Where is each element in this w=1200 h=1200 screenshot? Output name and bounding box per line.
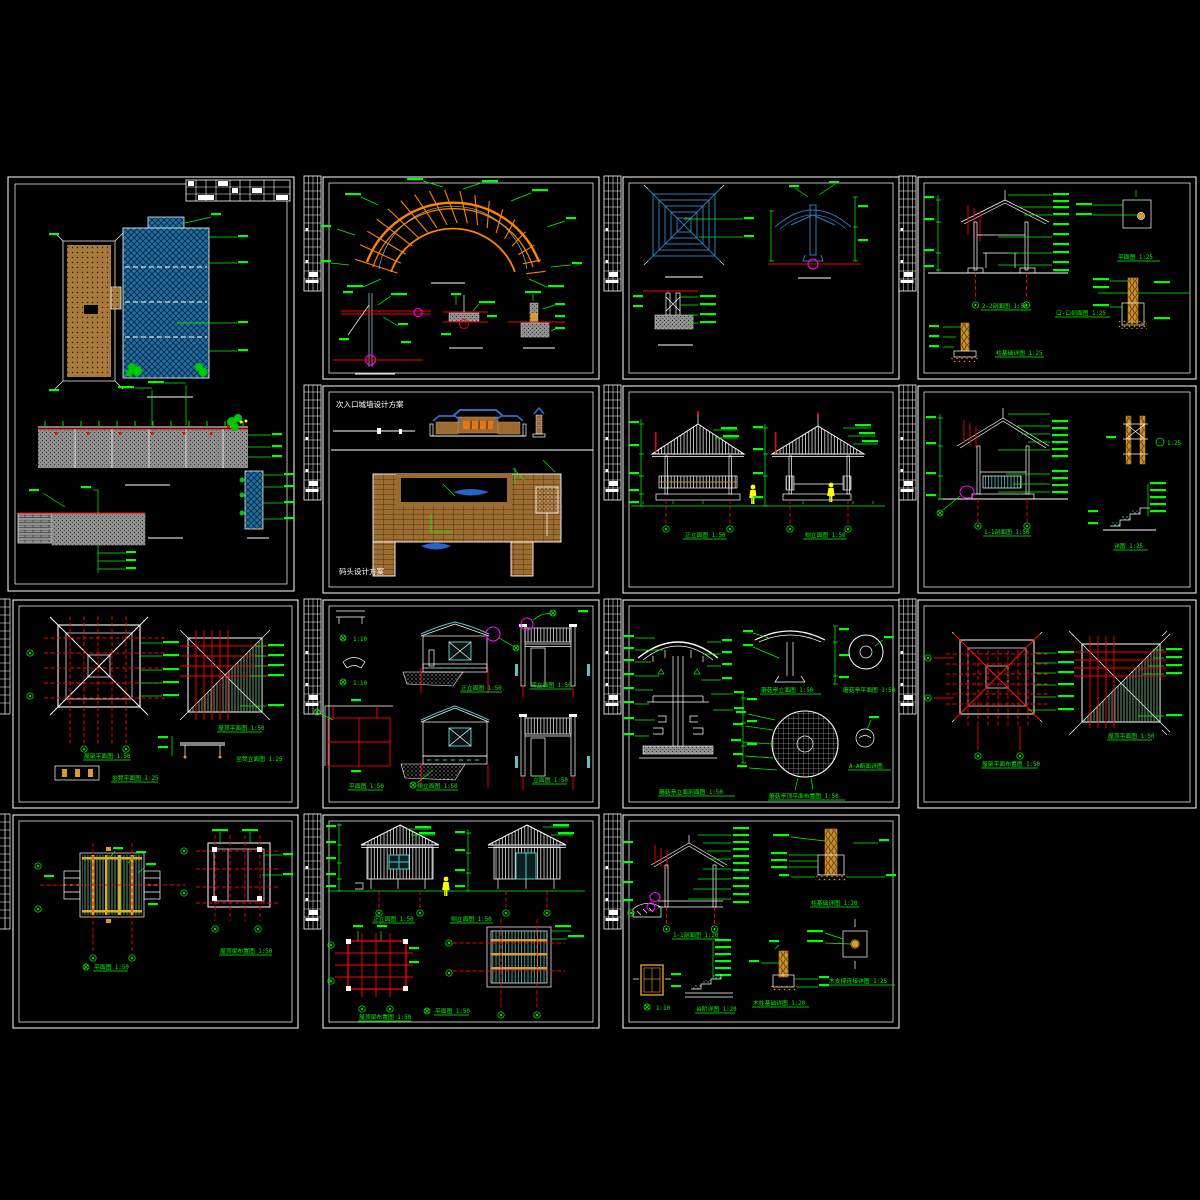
scale-2: 1:10	[353, 681, 367, 687]
sheet-03-pavilion-roof[interactable]	[603, 175, 903, 382]
roof-plan	[644, 185, 754, 277]
revision-strip	[899, 176, 916, 291]
sheet-14-drawing: 1-1剖面图 1:20 柱基础详图 1:20 木支撑连接详图 1:25 台阶详图…	[603, 813, 903, 1031]
step-detail: 台阶详图 1:20	[671, 939, 737, 1013]
sheet-12-pergola-plans[interactable]: 平面图 1:50 屋顶梁布置图 1:50	[0, 813, 302, 1031]
section-title: 蘑菇亭立面剖面图 1:50	[659, 788, 723, 796]
step-detail: 详图 1:25	[1088, 482, 1166, 550]
revision-strip	[0, 814, 10, 929]
sheet-04-pavilion-section[interactable]: 2-2剖面图 1:50 平面图 1:25 口-口剖面图 1:25 柱基础详图 1…	[898, 175, 1200, 382]
revision-strip	[304, 814, 321, 929]
section-title: 1-1剖面图 1:20	[673, 931, 719, 939]
brace-title: 木支撑连接详图 1:25	[829, 977, 888, 985]
side-elevation	[772, 413, 878, 532]
house-elevation-front	[403, 622, 519, 693]
pile-plan-title: 平面图 1:25	[1118, 253, 1153, 261]
roof-layout-plan: 蘑菇亭顶平面布置图 1:50	[731, 711, 845, 800]
revision-strip	[304, 385, 321, 500]
pond-plan	[123, 213, 248, 397]
hut-section: 1-1剖面图 1:20	[623, 827, 749, 939]
plan-title: 平面图 1:50	[94, 963, 129, 971]
aa-title: A-A断面详图	[849, 762, 883, 770]
beam-framing-plan: 屋顶梁布置图 1:50	[328, 925, 419, 1021]
framing-title: 屋架平面图 1:50	[84, 752, 131, 760]
title-3: 侧立面图 1:50	[417, 782, 458, 790]
sheet-02-drawing	[303, 175, 603, 382]
column-footing-top: 柱基础详图 1:20	[771, 829, 896, 907]
column-footing-detail: 柱基础详图 1:25	[929, 323, 1044, 362]
mushroom-plan: 蘑菇亭平面图 1:50	[843, 635, 896, 694]
revision-strip	[604, 814, 621, 929]
section-1-1: 1-1剖面图 1:50	[926, 408, 1068, 536]
scale-1: 1:10	[353, 637, 367, 643]
sheet-04-drawing: 2-2剖面图 1:50 平面图 1:25 口-口剖面图 1:25 柱基础详图 1…	[898, 175, 1200, 382]
person-figure	[442, 877, 449, 896]
revision-strip	[604, 385, 621, 500]
pergola-section-b	[441, 293, 497, 348]
scheme-title-top: 次入口城墙设计方案	[336, 399, 404, 409]
pile-plan-detail: 平面图 1:25	[1076, 190, 1160, 261]
pergola-section-a	[333, 291, 431, 374]
roof-title: 屋顶平面图 1:50	[218, 724, 265, 732]
pergola-footing-detail	[508, 291, 565, 348]
sheet-10-drawing: 蘑菇亭立面剖面图 1:50 蘑菇亭立面图 1:50 蘑菇亭平面图 1:50 蘑菇…	[603, 598, 903, 811]
section-title: 2-2剖面图 1:50	[982, 302, 1028, 310]
beam-layout-plan: 屋顶梁布置图 1:50	[181, 829, 293, 955]
revision-strip	[604, 176, 621, 291]
bench-legend: 1:10 1:10	[336, 611, 367, 687]
sheet-06-pavilion-elevations[interactable]: 正立面图 1:50 侧立面图 1:50	[603, 384, 903, 596]
sheet-07-pavilion-section[interactable]: 1-1剖面图 1:50 1:25 详图 1:25	[898, 384, 1200, 596]
plan-title: 蘑菇亭平面图 1:50	[843, 686, 896, 694]
side-title: 侧立面图 1:50	[805, 531, 846, 539]
revision-strip	[899, 599, 916, 714]
sheet-11-roof-plans[interactable]: 屋架平面布置图 1:50 屋顶平面图 1:50	[898, 598, 1200, 811]
sheet-03-drawing	[603, 175, 903, 382]
door-frame-detail: 1:10	[633, 965, 671, 1012]
section-detail: 口-口剖面图 1:25	[1055, 278, 1190, 329]
roof-title: 屋顶平面图 1:50	[1108, 732, 1155, 740]
sheet-08-roof-framing[interactable]: 屋架平面图 1:50 屋顶平面图 1:50 坐凳立面图 1:25 坐凳平面图 1…	[0, 598, 302, 811]
sheet-08-drawing: 屋架平面图 1:50 屋顶平面图 1:50 坐凳立面图 1:25 坐凳平面图 1…	[0, 598, 302, 811]
brace-plate-detail: 木支撑连接详图 1:25	[807, 919, 895, 985]
sheet-09-drawing: 1:10 1:10 正立面图 1:50 背立面图 1:50	[303, 598, 603, 811]
sheet-13-hut-elevations[interactable]: 正立面图 1:50 侧立面图 1:50 屋顶梁布置图 1:50 平面图 1:50	[303, 813, 603, 1031]
sheet-05-entrance-dock[interactable]: 次入口城墙设计方案 码头设计方案	[303, 384, 603, 596]
person-figure	[827, 483, 834, 502]
revision-strip	[304, 176, 321, 291]
front-title: 正立面图 1:50	[685, 531, 726, 539]
sheet-14-hut-section-details[interactable]: 1-1剖面图 1:20 柱基础详图 1:20 木支撑连接详图 1:25 台阶详图…	[603, 813, 903, 1031]
house-elevation-side	[401, 706, 489, 788]
detail-title: 口-口剖面图 1:25	[1056, 309, 1106, 317]
roof-plan	[49, 233, 123, 391]
column-detail: 1:25	[1106, 416, 1181, 464]
scale-label: 1:25	[1167, 441, 1181, 447]
elev-title: 蘑菇亭立面图 1:50	[761, 686, 814, 694]
framing-title: 屋架平面布置图 1:50	[982, 760, 1041, 768]
bench-elevation: 坐凳立面图 1:25	[158, 736, 283, 763]
post-title: 木柱基础详图 1:20	[753, 999, 806, 1007]
beam-title: 屋顶梁布置图 1:50	[220, 947, 273, 955]
section-2-2: 2-2剖面图 1:50	[924, 190, 1069, 310]
sheet-10-mushroom-pavilion[interactable]: 蘑菇亭立面剖面图 1:50 蘑菇亭立面图 1:50 蘑菇亭平面图 1:50 蘑菇…	[603, 598, 903, 811]
sheet-01-drawing	[5, 175, 297, 595]
roof-plan: 屋顶平面图 1:50	[180, 630, 284, 732]
section-title: 1-1剖面图 1:50	[984, 528, 1030, 536]
sheet-06-drawing: 正立面图 1:50 侧立面图 1:50	[603, 384, 903, 596]
wall-plan: 平面图 1:50	[314, 699, 393, 790]
sheet-01-roof-pond-wall[interactable]	[5, 175, 297, 595]
wall-section-detail	[18, 486, 183, 573]
sheet-13-drawing: 正立面图 1:50 侧立面图 1:50 屋顶梁布置图 1:50 平面图 1:50	[303, 813, 603, 1031]
footing-detail	[633, 291, 716, 345]
revision-strip	[604, 599, 621, 714]
footing-title: 柱基础详图 1:20	[811, 899, 858, 907]
front-elevation	[652, 411, 757, 532]
sheet-02-curved-pergola[interactable]	[303, 175, 603, 382]
side-title: 侧立面图 1:50	[451, 915, 492, 923]
sheet-09-gate-elevations[interactable]: 1:10 1:10 正立面图 1:50 背立面图 1:50	[303, 598, 603, 811]
post-footing-bottom: 木柱基础详图 1:20	[749, 940, 829, 1007]
scale-bar	[333, 428, 415, 434]
footing-title: 柱基础详图 1:25	[996, 349, 1043, 357]
aa-section-detail: A-A断面详图	[848, 716, 891, 770]
sheet-12-drawing: 平面图 1:50 屋顶梁布置图 1:50	[0, 813, 302, 1031]
sheet-11-drawing: 屋架平面布置图 1:50 屋顶平面图 1:50	[898, 598, 1200, 811]
framing-plan: 屋架平面布置图 1:50	[925, 632, 1074, 768]
pergola-plan: 平面图 1:50	[35, 843, 185, 971]
roof-layout-plan: 平面图 1:50	[424, 919, 584, 1018]
sheet-05-drawing: 次入口城墙设计方案 码头设计方案	[303, 384, 603, 596]
gate-elevation	[430, 410, 526, 436]
step-title: 详图 1:25	[1114, 542, 1144, 550]
revision-strip	[0, 599, 10, 714]
revision-strip	[304, 599, 321, 714]
cad-drawing-set: 2-2剖面图 1:50 平面图 1:25 口-口剖面图 1:25 柱基础详图 1…	[0, 0, 1200, 1200]
title-5: 平面图 1:50	[349, 782, 384, 790]
hut-side-elevation	[488, 824, 574, 916]
framing-title: 屋顶梁布置图 1:50	[359, 1013, 412, 1021]
title-4: 立面图 1:50	[533, 776, 568, 784]
front-title: 正立面图 1:50	[373, 915, 414, 923]
framing-plan: 屋架平面图 1:50	[27, 616, 179, 760]
title-2: 背立面图 1:50	[531, 681, 572, 689]
scheme-title-bottom: 码头设计方案	[339, 566, 384, 576]
title-1: 正立面图 1:50	[461, 684, 502, 692]
pergola-arc-plan	[321, 178, 582, 287]
revision-strip	[899, 385, 916, 500]
roof-title: 平面图 1:50	[435, 1007, 470, 1015]
door-scale: 1:10	[656, 1006, 670, 1012]
roof-plan: 屋顶平面图 1:50	[1069, 631, 1182, 740]
layout-title: 蘑菇亭顶平面布置图 1:50	[769, 792, 839, 800]
hut-front-elevation	[355, 825, 439, 916]
bench-elev-title: 坐凳立面图 1:25	[236, 755, 283, 763]
mushroom-elevation: 蘑菇亭立面图 1:50	[743, 626, 849, 694]
pool-wall-strip	[240, 471, 295, 538]
bench-plan: 坐凳平面图 1:25	[55, 766, 159, 782]
sheet-07-drawing: 1-1剖面图 1:50 1:25 详图 1:25	[898, 384, 1200, 596]
bench-plan-title: 坐凳平面图 1:25	[112, 774, 159, 782]
roof-section	[768, 181, 868, 278]
title-table	[186, 180, 290, 201]
lamp-column	[533, 408, 545, 437]
step-title: 台阶详图 1:20	[696, 1005, 737, 1013]
dock-plan	[373, 460, 561, 576]
mushroom-section: 蘑菇亭立面剖面图 1:50	[624, 635, 757, 796]
